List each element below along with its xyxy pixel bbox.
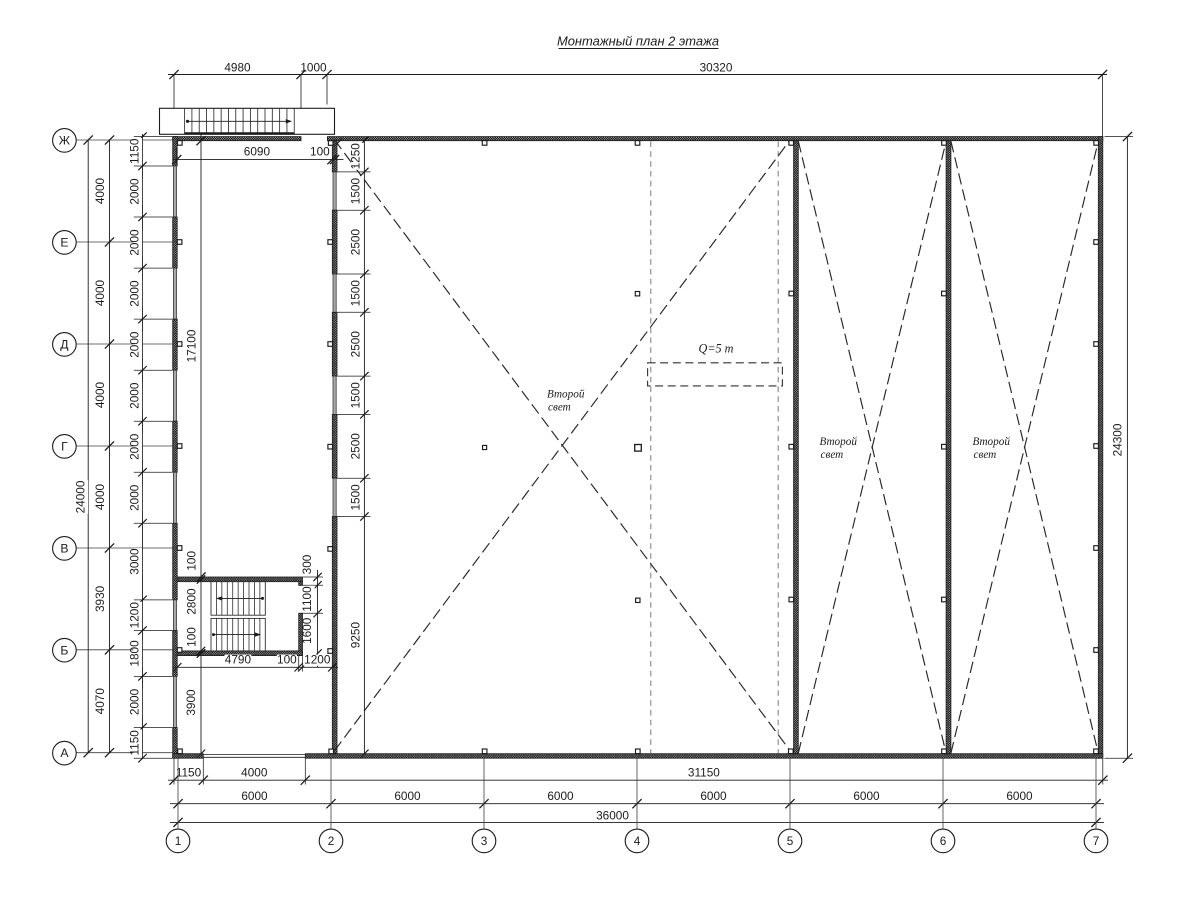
- svg-text:свет: свет: [821, 449, 844, 461]
- svg-text:31150: 31150: [688, 766, 720, 780]
- svg-text:Второй: Второй: [973, 436, 1011, 448]
- svg-text:3930: 3930: [93, 585, 107, 612]
- svg-text:7: 7: [1093, 834, 1100, 848]
- svg-text:9250: 9250: [349, 622, 363, 649]
- svg-text:1000: 1000: [300, 61, 327, 75]
- svg-text:4070: 4070: [93, 688, 107, 715]
- svg-text:6000: 6000: [853, 789, 880, 803]
- svg-text:Б: Б: [60, 643, 68, 657]
- svg-text:6000: 6000: [394, 789, 421, 803]
- svg-text:100: 100: [184, 627, 198, 647]
- svg-text:1500: 1500: [349, 382, 363, 409]
- svg-text:1: 1: [175, 834, 182, 848]
- svg-text:свет: свет: [974, 449, 997, 461]
- svg-text:2000: 2000: [127, 433, 141, 460]
- svg-text:100: 100: [310, 144, 330, 158]
- svg-text:1500: 1500: [349, 484, 363, 511]
- svg-text:2000: 2000: [127, 280, 141, 307]
- svg-text:Ж: Ж: [59, 134, 71, 148]
- svg-text:Е: Е: [60, 236, 68, 250]
- svg-text:4000: 4000: [93, 381, 107, 408]
- svg-text:свет: свет: [548, 402, 571, 414]
- svg-text:6000: 6000: [241, 789, 268, 803]
- svg-text:1100: 1100: [300, 586, 314, 612]
- svg-text:2000: 2000: [127, 178, 141, 205]
- svg-text:6: 6: [940, 834, 947, 848]
- svg-text:5: 5: [787, 834, 794, 848]
- svg-text:Q=5 т: Q=5 т: [699, 342, 734, 356]
- svg-text:3000: 3000: [127, 548, 141, 575]
- svg-text:4790: 4790: [225, 653, 252, 667]
- svg-text:2000: 2000: [127, 331, 141, 358]
- svg-text:24300: 24300: [1110, 423, 1124, 456]
- svg-text:Второй: Второй: [547, 388, 585, 400]
- svg-text:2000: 2000: [127, 382, 141, 409]
- svg-text:17100: 17100: [184, 329, 198, 362]
- svg-text:100: 100: [277, 653, 297, 667]
- svg-text:1250: 1250: [349, 143, 363, 170]
- svg-text:36000: 36000: [596, 808, 629, 822]
- svg-text:2500: 2500: [349, 331, 363, 358]
- svg-text:2500: 2500: [349, 433, 363, 460]
- svg-text:2800: 2800: [184, 588, 198, 615]
- svg-text:300: 300: [300, 554, 314, 574]
- svg-text:2: 2: [328, 834, 335, 848]
- svg-text:1150: 1150: [127, 138, 141, 164]
- svg-text:1800: 1800: [127, 640, 141, 667]
- svg-text:А: А: [60, 746, 69, 760]
- svg-text:2000: 2000: [127, 484, 141, 511]
- svg-text:2000: 2000: [127, 688, 141, 715]
- svg-text:1600: 1600: [300, 617, 314, 644]
- svg-text:6000: 6000: [1006, 789, 1033, 803]
- svg-text:1500: 1500: [349, 178, 363, 205]
- svg-text:30320: 30320: [700, 61, 733, 75]
- svg-text:6090: 6090: [244, 144, 271, 158]
- svg-text:Второй: Второй: [820, 436, 858, 448]
- svg-text:100: 100: [184, 551, 198, 571]
- svg-text:4980: 4980: [224, 61, 251, 75]
- svg-text:3900: 3900: [184, 689, 198, 716]
- svg-text:3: 3: [481, 834, 488, 848]
- svg-text:Г: Г: [61, 440, 68, 454]
- svg-text:1200: 1200: [304, 653, 331, 667]
- svg-text:4000: 4000: [93, 483, 107, 510]
- svg-text:Монтажный план 2 этажа: Монтажный план 2 этажа: [557, 34, 719, 49]
- svg-text:4000: 4000: [93, 177, 107, 204]
- svg-text:1200: 1200: [127, 602, 141, 629]
- svg-text:4: 4: [634, 834, 641, 848]
- svg-text:24000: 24000: [73, 480, 87, 513]
- svg-text:4000: 4000: [93, 279, 107, 306]
- svg-text:2000: 2000: [127, 229, 141, 256]
- svg-text:В: В: [60, 542, 68, 556]
- svg-text:4000: 4000: [241, 766, 268, 780]
- svg-text:1500: 1500: [349, 280, 363, 307]
- svg-text:2500: 2500: [349, 229, 363, 256]
- svg-text:1150: 1150: [176, 766, 202, 780]
- svg-text:6000: 6000: [547, 789, 574, 803]
- svg-text:Д: Д: [60, 338, 69, 352]
- svg-text:1150: 1150: [127, 730, 141, 756]
- svg-text:6000: 6000: [700, 789, 727, 803]
